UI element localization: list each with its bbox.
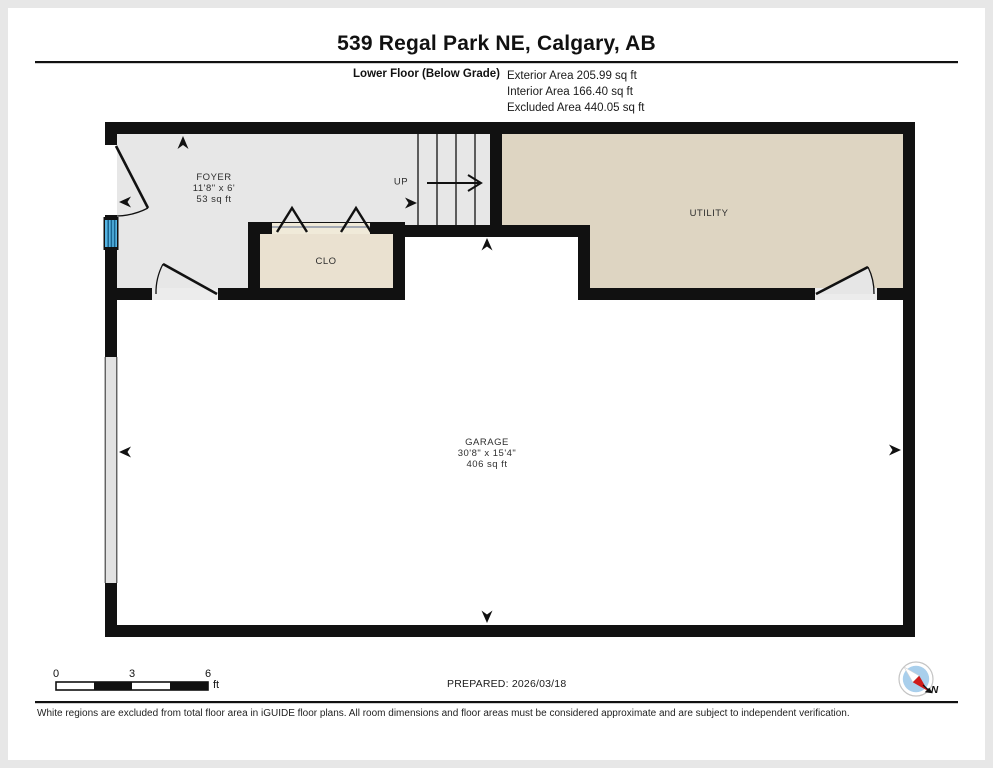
excluded-area-text: Excluded Area 440.05 sq ft bbox=[507, 100, 644, 116]
garage-door-icon bbox=[104, 357, 118, 583]
garage-notch bbox=[405, 237, 578, 300]
garage-area: 406 sq ft bbox=[458, 460, 517, 471]
foyer-label: FOYER 11'8" x 6' 53 sq ft bbox=[193, 173, 235, 205]
garage-dimensions: 30'8" x 15'4" bbox=[458, 449, 517, 460]
footer-rule bbox=[35, 701, 958, 703]
foyer-dimensions: 11'8" x 6' bbox=[193, 184, 235, 195]
scale-tick-0: 0 bbox=[53, 668, 59, 680]
interior-area-text: Interior Area 166.40 sq ft bbox=[507, 84, 644, 100]
compass-north-label: N bbox=[931, 685, 938, 696]
window-icon bbox=[104, 217, 119, 250]
scale-unit-label: ft bbox=[213, 679, 219, 691]
utility-label: UTILITY bbox=[690, 209, 729, 220]
page-title: 539 Regal Park NE, Calgary, AB bbox=[0, 32, 993, 56]
stairs-up-label: UP bbox=[394, 177, 408, 188]
floor-name-label: Lower Floor (Below Grade) bbox=[150, 68, 500, 80]
prepared-date: PREPARED: 2026/03/18 bbox=[447, 678, 566, 690]
garage-label: GARAGE 30'8" x 15'4" 406 sq ft bbox=[458, 438, 517, 470]
disclaimer-text: White regions are excluded from total fl… bbox=[37, 708, 850, 719]
header-rule bbox=[35, 61, 958, 63]
area-summary: Exterior Area 205.99 sq ft Interior Area… bbox=[507, 68, 644, 117]
floor-plan-canvas bbox=[0, 0, 993, 768]
scale-tick-6: 6 bbox=[205, 668, 211, 680]
exterior-area-text: Exterior Area 205.99 sq ft bbox=[507, 68, 644, 84]
compass-icon bbox=[899, 662, 933, 696]
scale-tick-3: 3 bbox=[129, 668, 135, 680]
scale-bar-icon bbox=[56, 682, 208, 690]
closet-label: CLO bbox=[315, 257, 336, 268]
floor-plan-page: 539 Regal Park NE, Calgary, AB Lower Flo… bbox=[0, 0, 993, 768]
foyer-area: 53 sq ft bbox=[193, 195, 235, 206]
